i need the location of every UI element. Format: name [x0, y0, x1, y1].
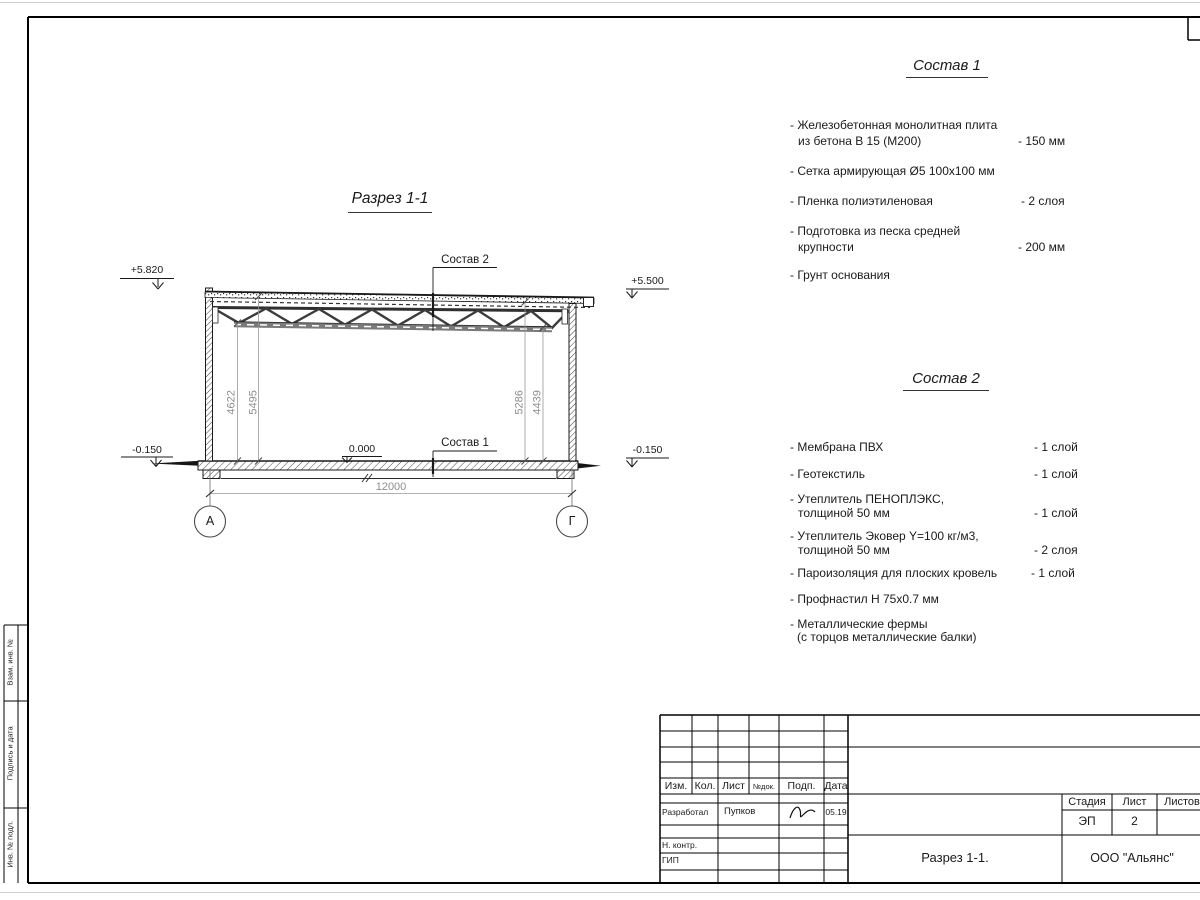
- tb-col-data: Дата: [824, 780, 848, 792]
- section-view: [120, 268, 669, 538]
- dim-5495: 5495: [247, 367, 260, 437]
- dim-4622: 4622: [226, 367, 239, 437]
- margin-label-podpis: Подпись и дата: [7, 715, 16, 791]
- comp2-item5-line1: - Пароизоляция для плоских кровель: [790, 567, 997, 581]
- comp2-item5-value: - 1 слой: [1031, 567, 1075, 581]
- comp1-item4-line1: - Подготовка из песка средней: [790, 225, 960, 239]
- dim-4439: 4439: [531, 367, 544, 437]
- view-title: Разрез 1-1: [348, 190, 432, 213]
- comp1-item5-line1: - Грунт основания: [790, 269, 890, 283]
- roof-truss: [213, 307, 569, 330]
- comp2-item1-value: - 1 слой: [1034, 441, 1078, 455]
- dim-5286: 5286: [513, 367, 526, 437]
- comp2-item4-value: - 2 слоя: [1034, 544, 1078, 558]
- elevation-zero: 0.000: [342, 443, 382, 455]
- tb-stage-value: ЭП: [1062, 815, 1112, 829]
- tb-stage-label: Стадия: [1062, 796, 1112, 809]
- comp2-item7-line2: (с торцов металлические балки): [797, 631, 977, 645]
- elevation-top-left: +5.820: [120, 264, 174, 276]
- wall-left: [206, 288, 213, 461]
- comp1-item1-value: - 150 мм: [1018, 135, 1065, 149]
- comp2-item6-line1: - Профнастил Н 75х0.7 мм: [790, 593, 939, 607]
- tb-sheet-value: 2: [1112, 815, 1157, 829]
- tb-col-kol: Кол.: [692, 780, 718, 792]
- margin-label-inv: Инв. № подл.: [7, 806, 16, 882]
- comp1-item3-line1: - Пленка полиэтиленовая: [790, 195, 933, 209]
- tb-company: ООО "Альянс": [1062, 851, 1200, 865]
- callout-sostav1: Состав 1: [433, 437, 497, 450]
- callout-sostav2: Состав 2: [433, 254, 497, 267]
- comp2-item3-value: - 1 слой: [1034, 507, 1078, 521]
- comp1-item4-value: - 200 мм: [1018, 241, 1065, 255]
- comp2-item3-line2: толщиной 50 мм: [798, 507, 890, 521]
- dimension-ticks: [234, 293, 547, 465]
- tb-sheets-label: Листов: [1157, 796, 1200, 809]
- comp1-item4-line2: крупности: [798, 241, 854, 255]
- comp1-item3-value: - 2 слоя: [1021, 195, 1065, 209]
- comp2-item1-line1: - Мембрана ПВХ: [790, 441, 883, 455]
- tb-gip: ГИП: [662, 856, 679, 866]
- elevation-bottom-left: -0.150: [121, 444, 173, 456]
- axis-label-left: А: [198, 514, 222, 528]
- comp2-item2-line1: - Геотекстиль: [790, 468, 865, 482]
- dim-span: 12000: [361, 481, 421, 494]
- tb-col-podp: Подп.: [779, 780, 824, 792]
- drawing-sheet: Разрез 1-1 +5.820 +5.500 -0.150 -0.150 0…: [0, 0, 1200, 900]
- tb-sheet-label: Лист: [1112, 796, 1157, 809]
- margin-label-vzam: Взам. инв. №: [7, 624, 16, 700]
- comp1-item1-line2: из бетона В 15 (М200): [798, 135, 921, 149]
- comp1-item1-line1: - Железобетонная монолитная плита: [790, 119, 997, 133]
- signature: [790, 807, 815, 818]
- floor-slab: [198, 461, 578, 470]
- foundation-right: [557, 470, 574, 479]
- elevation-top-right: +5.500: [626, 275, 669, 287]
- elevation-bottom-right: -0.150: [626, 444, 669, 456]
- tb-col-ndok: №док.: [749, 783, 779, 792]
- comp2-item4-line2: толщиной 50 мм: [798, 544, 890, 558]
- tb-col-list: Лист: [718, 780, 749, 792]
- tb-developer-role: Разработал: [662, 808, 708, 818]
- comp2-heading: Состав 2: [903, 370, 989, 391]
- roof-slab: [205, 292, 594, 308]
- comp1-heading: Состав 1: [906, 57, 988, 78]
- tb-doc-title: Разрез 1-1.: [848, 851, 1062, 866]
- truss-seat-right: [562, 309, 568, 324]
- comp1-item2-line1: - Сетка армирующая Ø5 100х100 мм: [790, 165, 995, 179]
- tb-ncontrol: Н. контр.: [662, 841, 697, 851]
- tb-developer-date: 05.19: [824, 808, 848, 818]
- axis-label-right: Г: [560, 514, 584, 528]
- wall-right: [569, 304, 576, 462]
- tb-developer-name: Пупков: [724, 807, 755, 818]
- comp2-item2-value: - 1 слой: [1034, 468, 1078, 482]
- comp2-item4-line1: - Утеплитель Эковер Y=100 кг/м3,: [790, 530, 979, 544]
- tb-col-izm: Изм.: [661, 780, 691, 792]
- comp2-item3-line1: - Утеплитель ПЕНОПЛЭКС,: [790, 493, 944, 507]
- foundation-left: [203, 470, 220, 479]
- truss-seat-left: [213, 307, 219, 323]
- ground-wedge-right: [577, 463, 601, 469]
- roof-edge-detail: [584, 298, 594, 307]
